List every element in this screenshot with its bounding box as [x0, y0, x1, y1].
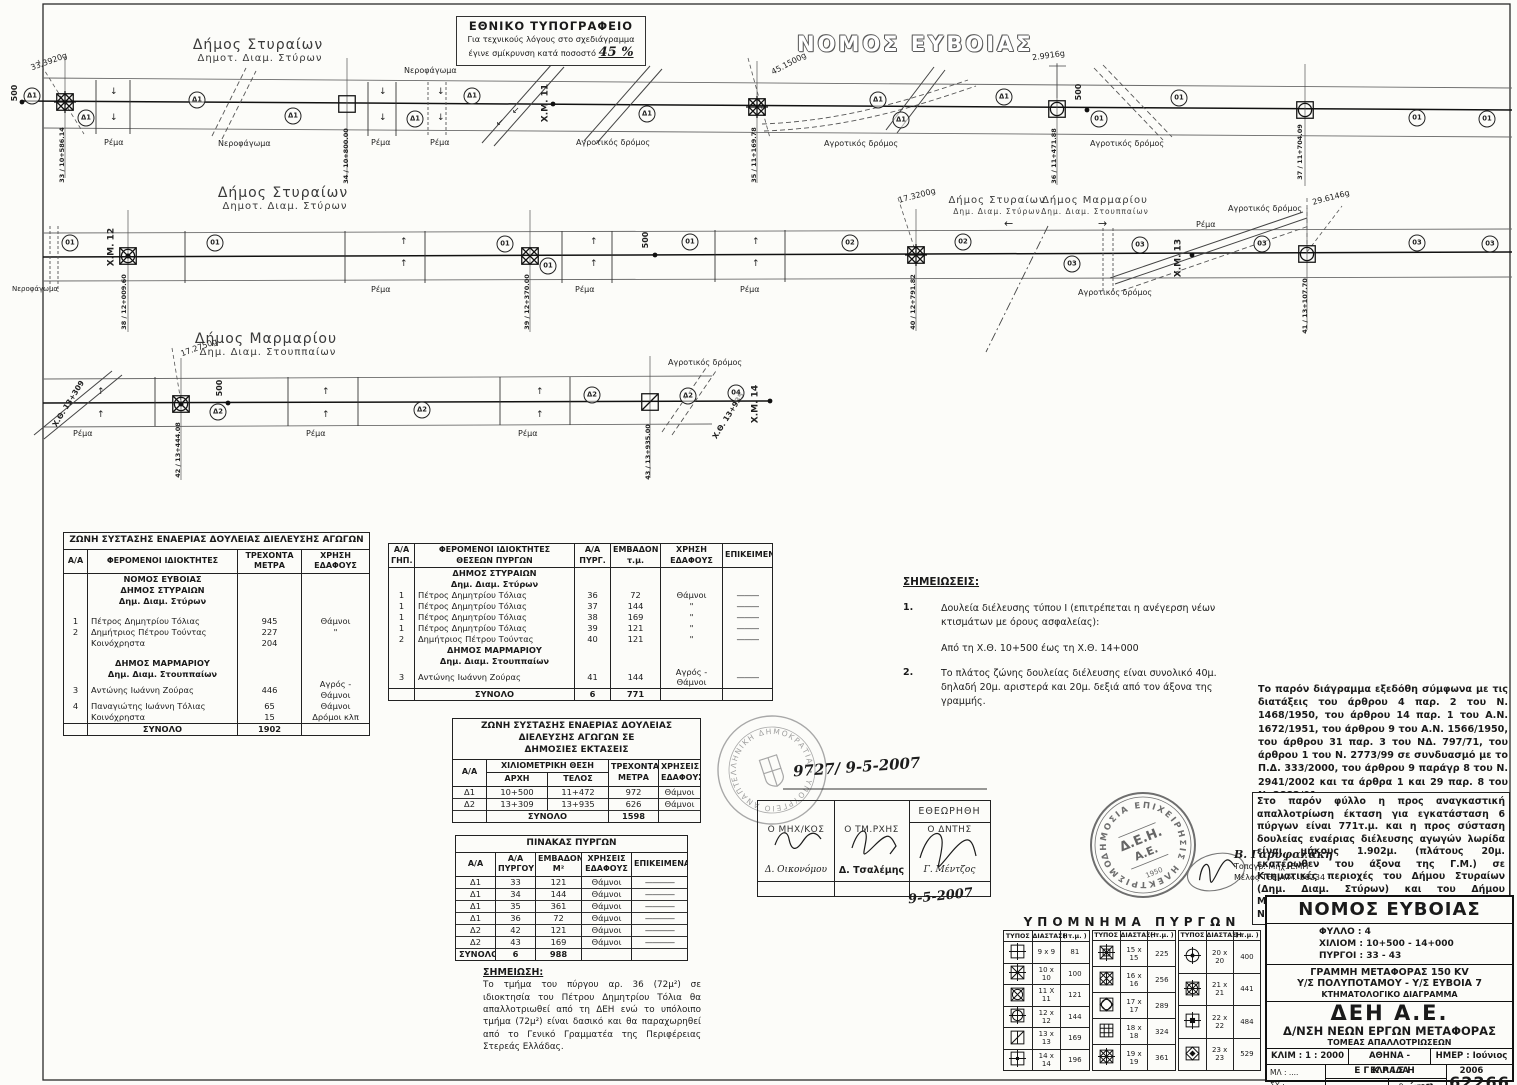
legend-area: 169	[1061, 1028, 1090, 1050]
legend-row: 23 x 23529	[1179, 1038, 1261, 1071]
table-cell: Θάμνοι	[659, 786, 701, 798]
diagram-label: Δήμος Στυραίων	[218, 186, 348, 200]
table-cell	[302, 638, 370, 649]
span-number-badge: 01	[207, 235, 224, 252]
table-cell	[64, 596, 88, 607]
table-row: 3Αντώνης Ιωάννη Ζούρας41144Αγρός - Θάμνο…	[389, 667, 773, 689]
diagram-label: Νεροφάγωμα	[12, 286, 58, 293]
span-number-badge: Δ1	[24, 88, 41, 105]
diagram-label: 38 / 12+009.60	[121, 274, 128, 330]
table-cell	[238, 649, 302, 658]
table-cell: Θάμνοι	[302, 616, 370, 627]
legend-dimension: 19 x 19	[1120, 1045, 1148, 1071]
bottom-note: ΣΗΜΕΙΩΣΗ: Το τμήμα του πύργου αρ. 36 (72…	[483, 966, 701, 1053]
tower-type-icon-s11	[1009, 986, 1026, 1003]
tower-type-icon-s12	[1009, 1007, 1026, 1024]
approval-cell-3: Ο ΔΝΤΗΣΓ. Μέντζος	[909, 822, 990, 881]
table-row	[64, 649, 370, 658]
table-cell: ΔΗΜΟΣ ΜΑΡΜΑΡΙΟΥ	[88, 658, 238, 669]
table-cell: "	[661, 623, 723, 634]
table-cell	[64, 638, 88, 649]
legend-dimension: 20 x 20	[1206, 941, 1233, 974]
table-cell: Δημήτριος Πέτρου Τούντας	[415, 634, 575, 645]
table-cell: 39	[575, 623, 611, 634]
diagram-label: ↑	[752, 260, 760, 269]
table-cell	[88, 607, 238, 616]
table-cell	[575, 579, 611, 590]
legend-area: 529	[1233, 1038, 1260, 1071]
diagram-label: 29.6146g	[1312, 189, 1351, 207]
table-cell	[302, 573, 370, 584]
legend-header: ( τ.μ. )	[1148, 931, 1176, 941]
diagram-label: Δημοτ. Διαμ. Στύρων	[197, 54, 322, 64]
table-cell: 6	[575, 689, 611, 701]
span-number-badge: 01	[540, 258, 557, 275]
table-row: Δημ. Διαμ. Στουππαίων	[64, 669, 370, 680]
tower-legend: ΤΥΠΟΣΔΙΑΣΤΑΣΗ( τ.μ. )9 x 98110 x 1010011…	[1003, 930, 1263, 1071]
legend-area: 400	[1233, 941, 1260, 974]
column-header: ΤΡΕΧΟΝΤΑ ΜΕΤΡΑ	[238, 549, 302, 573]
column-header: ΕΜΒΑΔΟΝ τ.μ.	[611, 544, 661, 568]
table-cell: Κοινόχρηστα	[88, 712, 238, 723]
table-cell: 1902	[238, 724, 302, 736]
legend-header: ΔΙΑΣΤΑΣΗ	[1206, 931, 1233, 941]
table-cell: 72	[611, 590, 661, 601]
legend-dimension: 12 x 12	[1032, 1006, 1061, 1028]
diagram-label: Ρέμα	[430, 139, 450, 147]
tower-legend-group-2: ΤΥΠΟΣΔΙΑΣΤΑΣΗ( τ.μ. )15 x 1522516 x 1625…	[1092, 930, 1177, 1071]
surveyor-name: Β. Γαρυφαλάκη	[1234, 848, 1333, 862]
approval-cell: ΕΓΚΡΙΣΗ Β.Γαρυφαλάκη	[1326, 1065, 1447, 1085]
diagram-label: 35 / 11+169.78	[751, 127, 758, 183]
column-header: ΦΕΡΟΜΕΝΟΙ ΙΔΙΟΚΤΗΤΕΣ ΘΕΣΕΩΝ ΠΥΡΓΩΝ	[415, 544, 575, 568]
legend-row: 14 x 14196	[1004, 1049, 1090, 1071]
table-cell: 2	[64, 627, 88, 638]
table-row: Δ13672Θάμνοι————	[456, 912, 688, 924]
table-cell: 40	[575, 634, 611, 645]
table-cell: ΔΗΜΟΣ ΣΤΥΡΑΙΩΝ	[415, 568, 575, 579]
approval-role: Ο ΔΝΤΗΣ	[909, 825, 990, 835]
tower-type-icon-s15	[1098, 944, 1115, 961]
table-row: Δ242121Θάμνοι————	[456, 924, 688, 936]
diagram-label: Ρέμα	[104, 139, 124, 147]
diagram-label: 500	[216, 380, 224, 397]
legend-row: 9 x 981	[1004, 942, 1090, 964]
diagram-label: ↑	[400, 260, 408, 269]
tower-type-icon-s18	[1098, 1022, 1115, 1039]
table-cell: ———	[723, 612, 773, 623]
table-cell: 36	[575, 590, 611, 601]
legend-area: 256	[1148, 967, 1176, 993]
diagram-label: 43 / 13+935.00	[645, 424, 652, 480]
table-cell: 169	[536, 936, 582, 948]
table-cell: ———	[723, 590, 773, 601]
span-number-badge: 01	[62, 235, 79, 252]
table-cell: Δημ. Διαμ. Στουππαίων	[415, 656, 575, 667]
table-cell: Θάμνοι	[302, 701, 370, 712]
diagram-label: 2.9916g	[1032, 50, 1066, 63]
table-cell	[302, 724, 370, 736]
table-cell	[453, 810, 487, 822]
tower-type-icon-s13	[1009, 1029, 1026, 1046]
table-cell: 1	[389, 601, 415, 612]
table-cell	[389, 645, 415, 656]
diagram-label: Αγροτικός δρόμος	[1090, 140, 1164, 148]
table-row: ΣΥΝΟΛΟ1598	[453, 810, 701, 822]
diagram-label: Νεροφάγωμα	[404, 67, 457, 75]
diagram-label: 41 / 13+107.70	[1302, 278, 1309, 334]
column-header: ΦΕΡΟΜΕΝΟΙ ΙΔΙΟΚΤΗΤΕΣ	[88, 549, 238, 573]
table-row: ΣΥΝΟΛΟ6771	[389, 689, 773, 701]
table-cell: Πέτρος Δημητρίου Τόλιας	[415, 590, 575, 601]
table-cell: Θάμνοι	[659, 798, 701, 810]
column-header: ΕΠΙΚΕΙΜΕΝΑ	[723, 544, 773, 568]
column-header: ΕΠΙΚΕΙΜΕΝΑ	[632, 852, 688, 876]
table-row: 2Δημήτριος Πέτρου Τούντας227"	[64, 627, 370, 638]
tower-type-icon-s22	[1184, 1012, 1201, 1029]
span-number-badge: 03	[1064, 256, 1081, 273]
table-cell: Αγρός - Θάμνοι	[302, 679, 370, 701]
span-number-badge: 01	[1091, 111, 1108, 128]
approval-cell-1: Ο ΜΗΧ/ΚΟΣΔ. Οικονόμου	[758, 822, 834, 881]
table-cell	[64, 607, 88, 616]
column-header: Α/Α	[64, 549, 88, 573]
drawing-number-cell: 62266 ΦΥΛΛΟ 4 ΑΠΟ 11	[1447, 1065, 1512, 1085]
table-row: 3Αντώνης Ιωάννη Ζούρας446Αγρός - Θάμνοι	[64, 679, 370, 701]
legend-dimension: 16 x 16	[1120, 967, 1148, 993]
table-cell: "	[661, 601, 723, 612]
table-cell: 144	[611, 667, 661, 689]
diagram-label: ↑	[536, 411, 544, 420]
table-cell: 65	[238, 701, 302, 712]
tower-type-icon-s17	[1098, 996, 1115, 1013]
tower-type-icon-s19	[1098, 1048, 1115, 1065]
legend-header: ΤΥΠΟΣ	[1179, 931, 1206, 941]
legend-dimension: 23 x 23	[1206, 1038, 1233, 1071]
table-cell	[302, 596, 370, 607]
table-cell: 10+500	[487, 786, 548, 798]
table-row: 1Πέτρος Δημητρίου Τόλιας37144"———	[389, 601, 773, 612]
table-cell: 446	[238, 679, 302, 701]
table-cell	[611, 568, 661, 579]
tower-legend-group-1: ΤΥΠΟΣΔΙΑΣΤΑΣΗ( τ.μ. )9 x 98110 x 1010011…	[1003, 930, 1090, 1071]
table-cell	[64, 658, 88, 669]
table-cell: 3	[389, 667, 415, 689]
table-cell: "	[302, 627, 370, 638]
span-number-badge: 03	[1132, 237, 1149, 254]
table-row: ΔΗΜΟΣ ΜΑΡΜΑΡΙΟΥ	[64, 658, 370, 669]
legend-header: ΔΙΑΣΤΑΣΗ	[1120, 931, 1148, 941]
table-cell	[723, 579, 773, 590]
table-cell: Δρόμοι κλπ	[302, 712, 370, 723]
diagram-label: ↑	[97, 388, 105, 397]
column-header: Α/Α ΓΗΠ.	[389, 544, 415, 568]
diagram-label: ↓	[437, 114, 445, 123]
legend-dimension: 18 x 18	[1120, 1019, 1148, 1045]
legend-area: 324	[1148, 1019, 1176, 1045]
diagram-label: Αγροτικός δρόμος	[576, 139, 650, 147]
diagram-label: 36 / 11+471.88	[1051, 128, 1058, 184]
table-row: ΔΗΜΟΣ ΣΤΥΡΑΙΩΝ	[389, 568, 773, 579]
diagram-label: Χ.Μ. 13	[1175, 239, 1184, 277]
table-cell: ———	[723, 601, 773, 612]
diagram-label: Νεροφάγωμα	[218, 140, 271, 148]
diagram-label: Αγροτικός δρόμος	[1228, 205, 1302, 213]
diagram-label: Ρέμα	[371, 286, 391, 294]
column-header: ΧΙΛΙΟΜΕΤΡΙΚΗ ΘΕΣΗ	[487, 759, 609, 773]
diagram-label: 17.3200g	[898, 187, 937, 205]
diagram-label: ↑	[322, 388, 330, 397]
table-cell	[302, 649, 370, 658]
table-cell	[611, 645, 661, 656]
table-cell: 38	[575, 612, 611, 623]
diagram-label: Ρέμα	[518, 430, 538, 438]
table-cell	[723, 689, 773, 701]
tower-legend-title: ΥΠΟΜΝΗΜΑ ΠΥΡΓΩΝ	[1003, 915, 1261, 929]
approval-name: Γ. Μέντζος	[909, 865, 990, 875]
span-number-badge: 03	[1254, 236, 1271, 253]
legend-dimension: 10 x 10	[1032, 963, 1061, 985]
table-cell: 3	[64, 679, 88, 701]
span-number-badge: 01	[497, 236, 514, 253]
span-number-badge: 01	[1479, 111, 1496, 128]
legend-area: 144	[1061, 1006, 1090, 1028]
span-number-badge: Δ2	[210, 404, 227, 421]
table-cell: Θάμνοι	[582, 888, 632, 900]
table-row: Δ110+50011+472972Θάμνοι	[453, 786, 701, 798]
table-cell	[389, 568, 415, 579]
diagram-label: ↑	[97, 411, 105, 420]
table-cell: ————	[632, 900, 688, 912]
table-cell: Αντώνης Ιωάννη Ζούρας	[88, 679, 238, 701]
table-cell	[302, 669, 370, 680]
diagram-label: Ρέμα	[575, 286, 595, 294]
table-cell: Δημήτριος Πέτρου Τούντας	[88, 627, 238, 638]
column-header: ΕΜΒΑΔΟΝ Μ²	[536, 852, 582, 876]
diagram-label: ↓	[110, 88, 118, 97]
company-name: ΔΕΗ Α.Ε.	[1267, 1002, 1512, 1024]
span-number-badge: 02	[842, 235, 859, 252]
table-cell: Δ2	[453, 798, 487, 810]
span-number-badge: 01	[1409, 110, 1426, 127]
table-cell: Κοινόχρηστα	[88, 638, 238, 649]
table-cell: 33	[496, 876, 536, 888]
diagram-label: Αγροτικός δρόμος	[824, 140, 898, 148]
diagram-label: 42 / 13+444.08	[175, 422, 182, 478]
table-cell: 988	[536, 948, 582, 960]
table-row: Δ135361Θάμνοι————	[456, 900, 688, 912]
title-block: ΝΟΜΟΣ ΕΥΒΟΙΑΣ ΦΥΛΛΟ : 4 ΧΙΛΙΟΜ : 10+500 …	[1265, 895, 1514, 1082]
table-cell: 2	[389, 634, 415, 645]
table-cell: ΔΗΜΟΣ ΣΤΥΡΑΙΩΝ	[88, 585, 238, 596]
table-cell: ———	[723, 634, 773, 645]
diagram-label: ↓	[437, 88, 445, 97]
column-header: ΑΡΧΗ	[487, 773, 548, 787]
diagram-label: Αγροτικός δρόμος	[668, 359, 742, 367]
table-cell: Πέτρος Δημητρίου Τόλιας	[415, 623, 575, 634]
scale-value: ΚΛΙΜ : 1 : 2000	[1267, 1049, 1349, 1064]
table-cell: ———	[723, 623, 773, 634]
diagram-label: 39 / 12+370.00	[524, 274, 531, 330]
table-cell: ———	[723, 667, 773, 689]
table-cell: ————	[632, 876, 688, 888]
span-number-badge: 02	[955, 234, 972, 251]
table-cell	[632, 948, 688, 960]
legend-row: 19 x 19361	[1092, 1045, 1176, 1071]
diagram-label: Χ.Θ. 13+309	[51, 379, 85, 428]
diagram-label: Χ.Μ. 12	[108, 228, 117, 266]
span-number-badge: Δ1	[285, 108, 302, 125]
span-number-badge: 01	[1171, 90, 1188, 107]
legend-area: 289	[1148, 993, 1176, 1019]
table-cell: 361	[536, 900, 582, 912]
span-number-badge: Δ1	[996, 89, 1013, 106]
diagram-label: Δήμος Στυραίων	[193, 38, 323, 52]
table-cell: 42	[496, 924, 536, 936]
table-cell	[611, 656, 661, 667]
table-cell	[302, 585, 370, 596]
table-cell: 1	[389, 612, 415, 623]
tower-type-icon-s10	[1009, 964, 1026, 981]
column-header: ΧΡΗΣΕΙΣ ΕΔΑΦΟΥΣ	[659, 759, 701, 786]
table-cell: 37	[575, 601, 611, 612]
legend-area: 484	[1233, 1006, 1260, 1039]
table-row: Δ213+30913+935626Θάμνοι	[453, 798, 701, 810]
table-cell: 72	[536, 912, 582, 924]
legend-area: 196	[1061, 1049, 1090, 1071]
table-cell: Θάμνοι	[582, 876, 632, 888]
diagram-label: 500	[642, 232, 650, 249]
table-cell: Δ1	[456, 912, 496, 924]
diagram-label: 500	[11, 85, 19, 102]
legend-header: ( τ.μ. )	[1061, 931, 1090, 942]
table-cell: Πέτρος Δημητρίου Τόλιας	[88, 616, 238, 627]
legal-paragraph: Το παρόν διάγραμμα εξεδόθη σύμφωνα με τι…	[1258, 683, 1508, 802]
legend-area: 225	[1148, 941, 1176, 967]
table-cell: "	[661, 634, 723, 645]
table-cell: Δημ. Διαμ. Στύρων	[415, 579, 575, 590]
table-row: Δημ. Διαμ. Στύρων	[64, 596, 370, 607]
legend-row: 21 x 21441	[1179, 973, 1261, 1006]
reduction-percent: 45 %	[599, 45, 634, 60]
tower-type-icon-s20	[1184, 947, 1201, 964]
table-cell: Θάμνοι	[582, 936, 632, 948]
table-row: 1Πέτρος Δημητρίου Τόλιας39121"———	[389, 623, 773, 634]
legend-dimension: 13 x 13	[1032, 1028, 1061, 1050]
table-row: 1Πέτρος Δημητρίου Τόλιας3672Θάμνοι———	[389, 590, 773, 601]
diagram-label: Δημ. Διαμ. Στουππαίων	[200, 348, 337, 358]
table-cell: Αντώνης Ιωάννη Ζούρας	[415, 667, 575, 689]
span-number-badge: 03	[1482, 236, 1499, 253]
diagram-label: 34 / 10+800.00	[343, 128, 350, 184]
table-cell	[575, 568, 611, 579]
table-cell: Δ1	[456, 900, 496, 912]
table-row: ΝΟΜΟΣ ΕΥΒΟΙΑΣ	[64, 573, 370, 584]
table-cell: ————	[632, 936, 688, 948]
table-cell: ΝΟΜΟΣ ΕΥΒΟΙΑΣ	[88, 573, 238, 584]
table-cell: 1	[64, 616, 88, 627]
table-cell: 945	[238, 616, 302, 627]
table-cell: Δ1	[453, 786, 487, 798]
legend-dimension: 22 x 22	[1206, 1006, 1233, 1039]
legend-dimension: 15 x 15	[1120, 941, 1148, 967]
diagram-label: 40 / 12+791.82	[910, 274, 917, 330]
legend-header: ΤΥΠΟΣ	[1092, 931, 1120, 941]
table-cell: 121	[536, 924, 582, 936]
diagram-label: Ρέμα	[306, 430, 326, 438]
column-header: Α/Α	[456, 852, 496, 876]
diagram-label: Χ.Μ. 11	[542, 84, 551, 122]
national-printing-box: ΕΘΝΙΚΟ ΤΥΠΟΓΡΑΦΕΙΟ Για τεχνικούς λόγους …	[456, 16, 646, 66]
table-row: Δ133121Θάμνοι————	[456, 876, 688, 888]
table-cell: 1598	[609, 810, 659, 822]
span-number-badge: Δ1	[189, 92, 206, 109]
notes-block: ΣΗΜΕΙΩΣΕΙΣ: 1.Δουλεία διέλευσης τύπου Ι …	[903, 576, 1218, 721]
table-cell	[88, 649, 238, 658]
column-header: Α/Α ΠΥΡΓΟΥ	[496, 852, 536, 876]
legend-row: 17 x 17289	[1092, 993, 1176, 1019]
table-cell: 144	[611, 601, 661, 612]
table-cell: ————	[632, 924, 688, 936]
column-header: ΤΡΕΧΟΝΤΑ ΜΕΤΡΑ	[609, 759, 659, 786]
table-cell: 15	[238, 712, 302, 723]
table-row: Δημ. Διαμ. Στουππαίων	[389, 656, 773, 667]
titleblock-sheet-info: ΦΥΛΛΟ : 4 ΧΙΛΙΟΜ : 10+500 - 14+000 ΠΥΡΓΟ…	[1267, 924, 1512, 965]
table-cell	[659, 810, 701, 822]
table-cell: 121	[611, 634, 661, 645]
diagram-label: 33.3920g	[30, 52, 69, 73]
table-cell: 6	[496, 948, 536, 960]
approval-block: ΕΘΕΩΡΗΘΗ Ο ΜΗΧ/ΚΟΣΔ. ΟικονόμουΟ ΤΜ.ΡΧΗΣΔ…	[757, 800, 991, 897]
approval-role: Ο ΜΗΧ/ΚΟΣ	[758, 825, 834, 835]
table-cell: 4	[64, 701, 88, 712]
approval-name: Δ. Οικονόμου	[758, 865, 834, 875]
titleblock-line-info: ΓΡΑΜΜΗ ΜΕΤΑΦΟΡΑΣ 150 KV Υ/Σ ΠΟΛΥΠΟΤΑΜΟΥ …	[1267, 965, 1512, 1002]
tower-type-icon-s23	[1184, 1045, 1201, 1062]
table-towers: ΠΙΝΑΚΑΣ ΠΥΡΓΩΝΑ/ΑΑ/Α ΠΥΡΓΟΥΕΜΒΑΔΟΝ Μ²ΧΡΗ…	[455, 835, 688, 961]
span-number-badge: Δ2	[414, 402, 431, 419]
region-outline-title: ΝΟΜΟΣ ΕΥΒΟΙΑΣ	[797, 32, 1034, 56]
diagram-label: Ρέμα	[1196, 221, 1216, 229]
span-number-badge: 04	[728, 385, 745, 402]
approval-signature: Β.Γαρυφαλάκη	[1330, 1079, 1435, 1085]
table-cell: 1	[389, 623, 415, 634]
span-number-badge: Δ2	[680, 388, 697, 405]
table-cell	[661, 568, 723, 579]
table-easement-public: ΖΩΝΗ ΣΥΣΤΑΣΗΣ ΕΝΑΕΡΙΑΣ ΔΟΥΛΕΙΑΣ ΔΙΕΛΕΥΣΗ…	[452, 718, 701, 823]
span-number-badge: Δ1	[78, 110, 95, 127]
column-header: ΤΕΛΟΣ	[548, 773, 609, 787]
span-number-badge: 03	[1409, 235, 1426, 252]
table-cell	[389, 689, 415, 701]
table-cell: 626	[609, 798, 659, 810]
diagram-label: ↑	[536, 388, 544, 397]
table-cell: Δ1	[456, 888, 496, 900]
table-cell	[64, 649, 88, 658]
diagram-label: →	[1098, 218, 1107, 229]
diagram-label: 37 / 11+704.09	[1297, 124, 1304, 180]
table-cell: Δημ. Διαμ. Στύρων	[88, 596, 238, 607]
diagram-label: ↑	[752, 238, 760, 247]
table-easement-private: ΖΩΝΗ ΣΥΣΤΑΣΗΣ ΕΝΑΕΡΙΑΣ ΔΟΥΛΕΙΑΣ ΔΙΕΛΕΥΣΗ…	[63, 532, 370, 736]
legend-header: ( τ.μ. )	[1233, 931, 1260, 941]
table-cell: Παναγιώτης Ιωάννη Τόλιας	[88, 701, 238, 712]
diagram-label: ↑	[322, 411, 330, 420]
table-cell	[238, 658, 302, 669]
table-row: Δημ. Διαμ. Στύρων	[389, 579, 773, 590]
table-cell: Δ2	[456, 936, 496, 948]
cadastral-drawing-sheet: ΕΛΛΗΝΙΚΗ ΔΗΜΟΚΡΑΤΙΑ • ΥΠΟΥΡΓΕΙΟ ΑΝΑΠΤΥΞΗ…	[0, 0, 1517, 1085]
